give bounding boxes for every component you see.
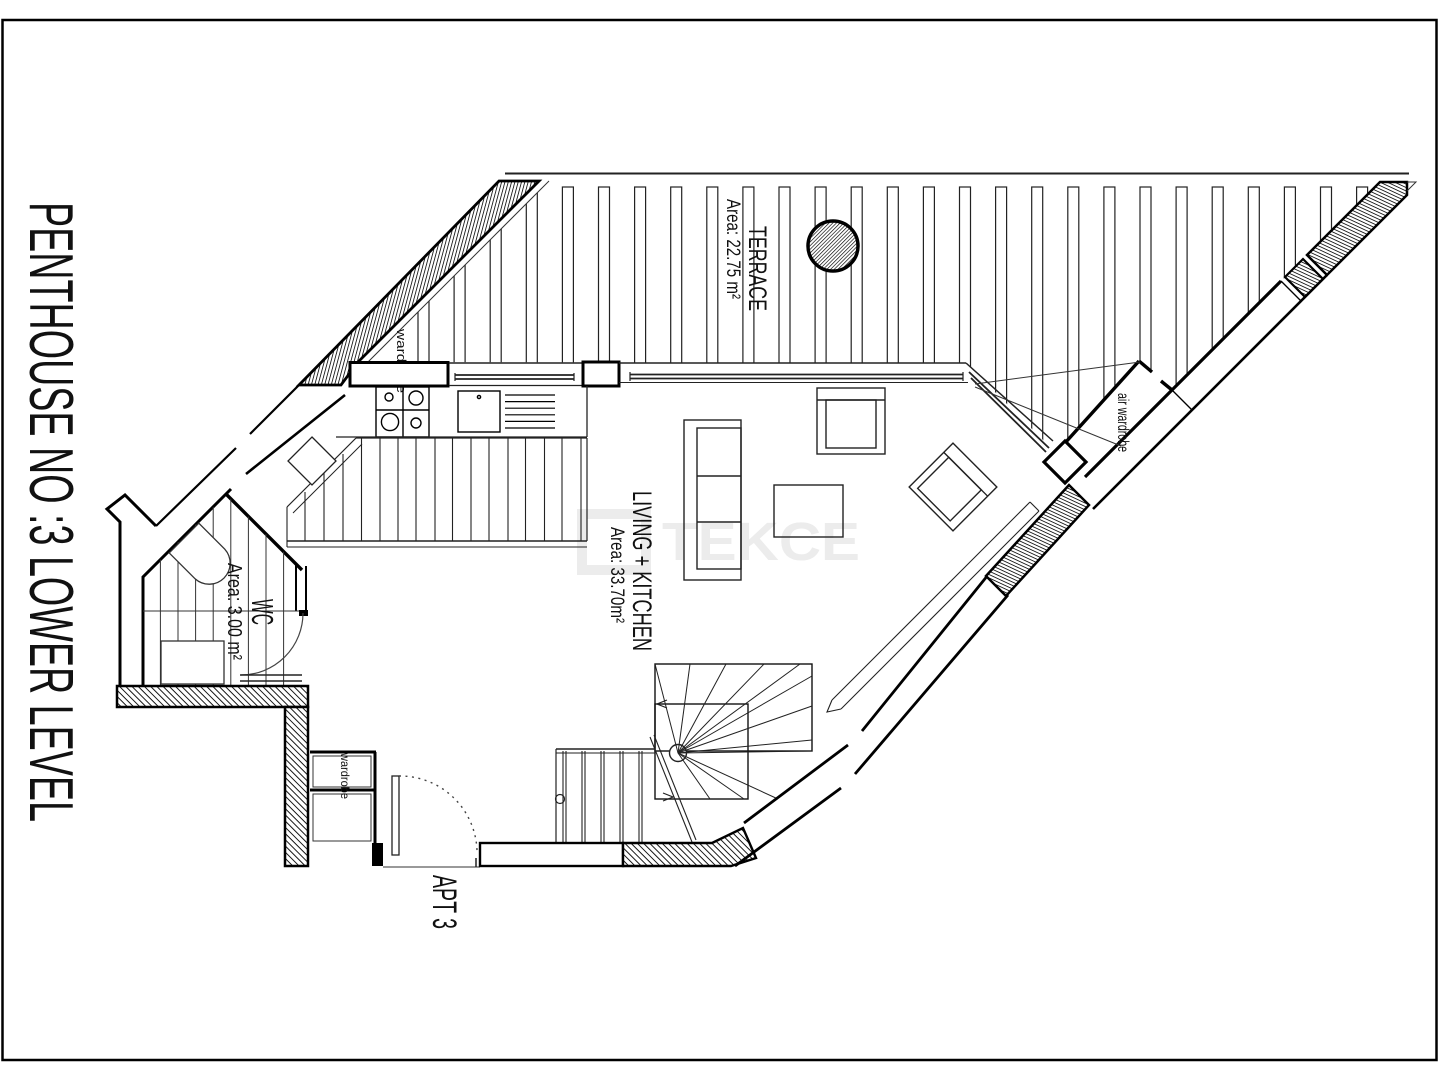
svg-text:TERRACE: TERRACE [743,226,771,311]
svg-text:PENTHOUSE NO :3 LOWER LEVEL: PENTHOUSE NO :3 LOWER LEVEL [16,202,85,822]
svg-text:LIVING + KITCHEN: LIVING + KITCHEN [627,491,657,651]
svg-text:air wardrobe: air wardrobe [1114,393,1131,452]
svg-text:wardrobe: wardrobe [338,752,352,799]
svg-text:Area: 3.00 m²: Area: 3.00 m² [223,563,245,660]
svg-text:Area: 33.70m²: Area: 33.70m² [606,527,627,623]
svg-text:WC: WC [245,599,280,625]
svg-text:TEKCE: TEKCE [662,512,860,572]
svg-text:APT 3: APT 3 [425,875,463,929]
svg-text:Area: 22.75 m²: Area: 22.75 m² [722,199,743,299]
